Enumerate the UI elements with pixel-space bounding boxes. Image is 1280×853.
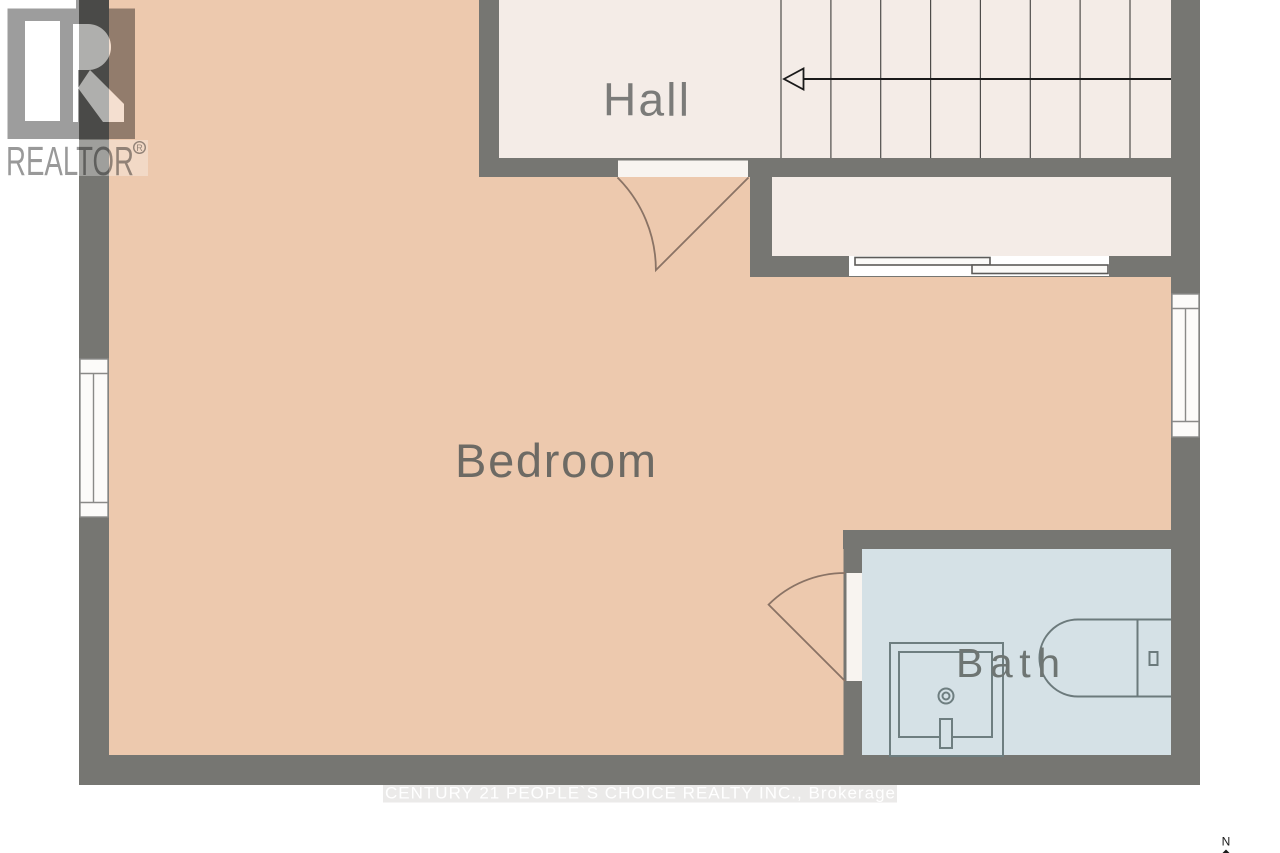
svg-text:CENTURY 21 PEOPLE`S CHOICE REA: CENTURY 21 PEOPLE`S CHOICE REALTY INC., … [385,784,895,803]
svg-text:Hall: Hall [603,74,689,126]
svg-text:N: N [1222,835,1231,849]
svg-text:REALTOR: REALTOR [6,138,134,184]
svg-text:Bath: Bath [956,640,1060,686]
svg-text:Bedroom: Bedroom [455,434,656,487]
svg-text:R: R [136,143,143,153]
